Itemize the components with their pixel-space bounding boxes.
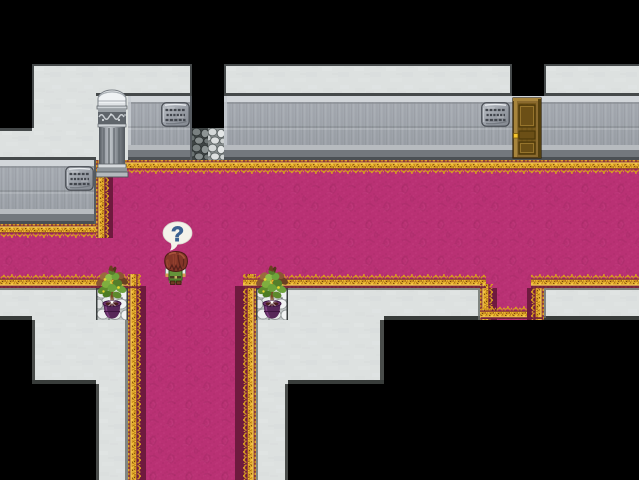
svg-text:?: ?: [171, 223, 184, 246]
